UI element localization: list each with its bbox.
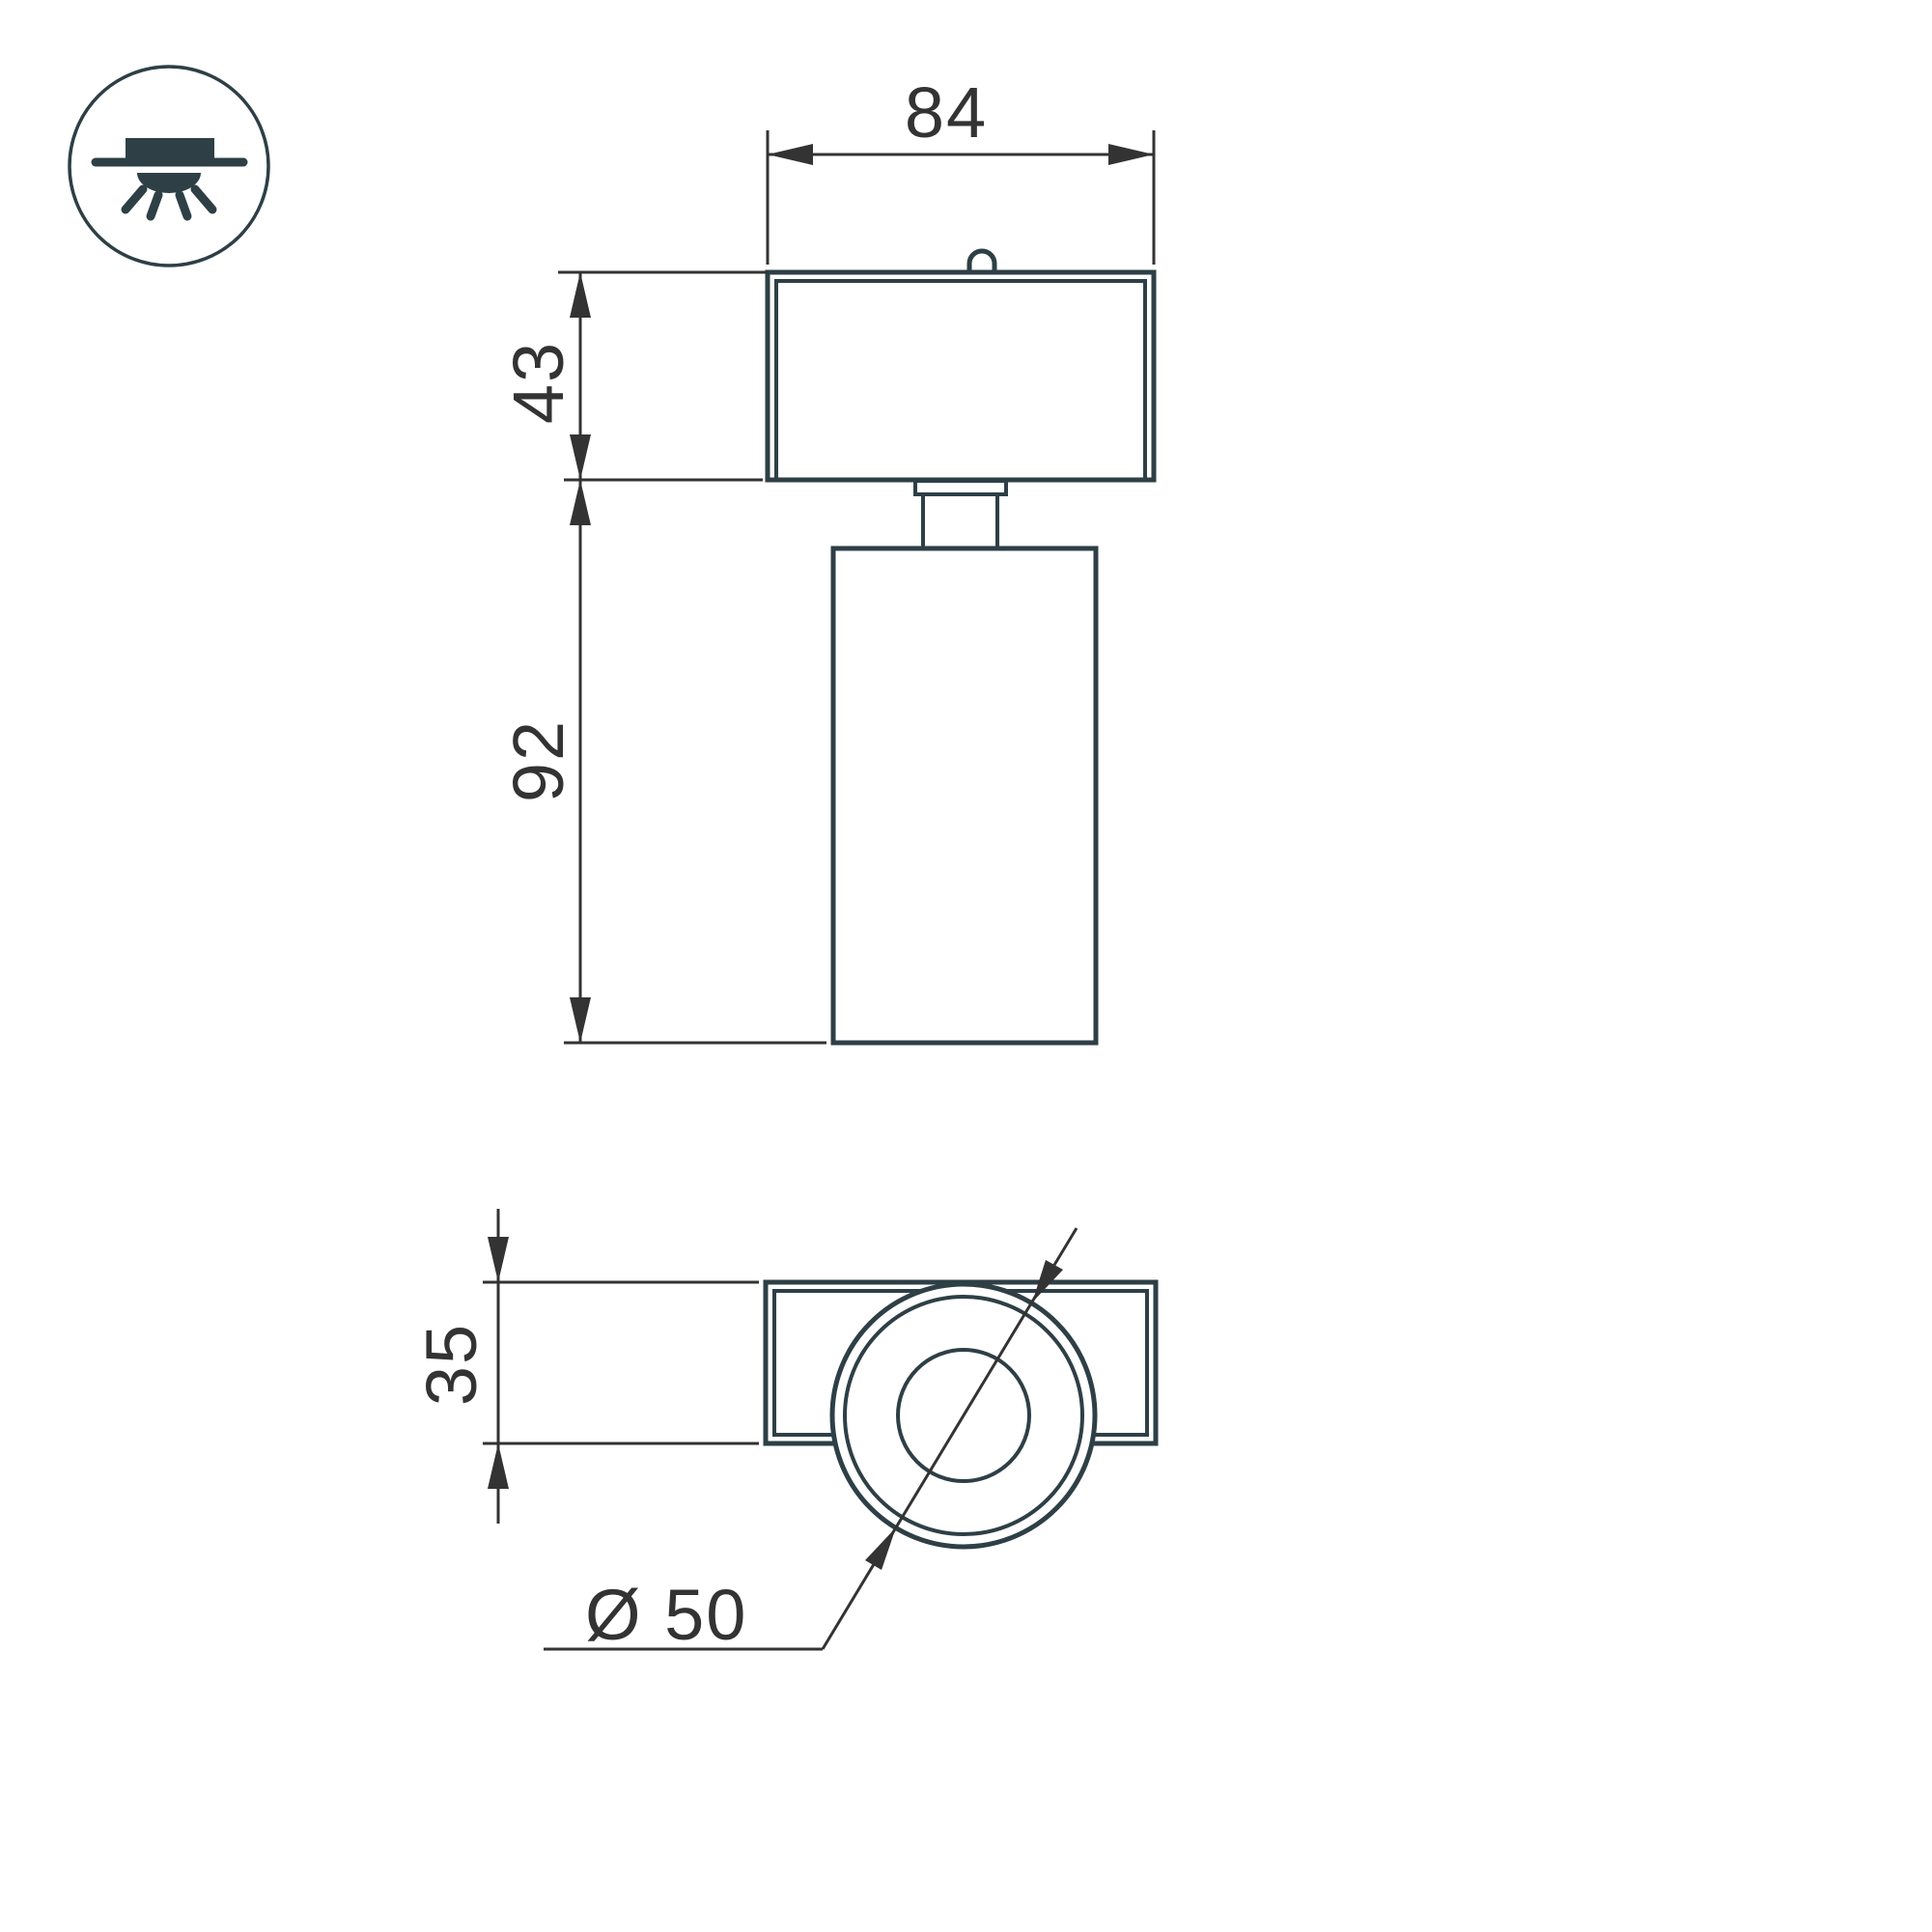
drawing-canvas: 84 43 92 35 Ø 50 (0, 0, 1932, 1932)
base-box-inner-line (776, 281, 1145, 480)
icon-light-rays (126, 189, 212, 216)
neck-flange (915, 481, 1006, 494)
dim-43 (558, 272, 768, 480)
base-box-outline (768, 272, 1154, 480)
bottom-view (766, 1282, 1156, 1547)
technical-drawing: 84 43 92 35 Ø 50 (0, 0, 1932, 1932)
dim-92 (564, 480, 826, 1043)
icon-mount-box (126, 138, 214, 161)
hinge-knob (969, 251, 994, 272)
recessed-ceiling-light-icon (70, 67, 268, 266)
front-view (768, 251, 1154, 1043)
label-body-height: 92 (498, 719, 578, 802)
label-top-width: 84 (905, 72, 988, 153)
label-base-height: 43 (498, 341, 578, 424)
label-head-diameter: Ø 50 (585, 1575, 747, 1655)
label-plate-height: 35 (411, 1323, 491, 1406)
neck (923, 494, 997, 548)
cylinder-body (833, 548, 1096, 1043)
dim-35 (483, 1209, 759, 1524)
